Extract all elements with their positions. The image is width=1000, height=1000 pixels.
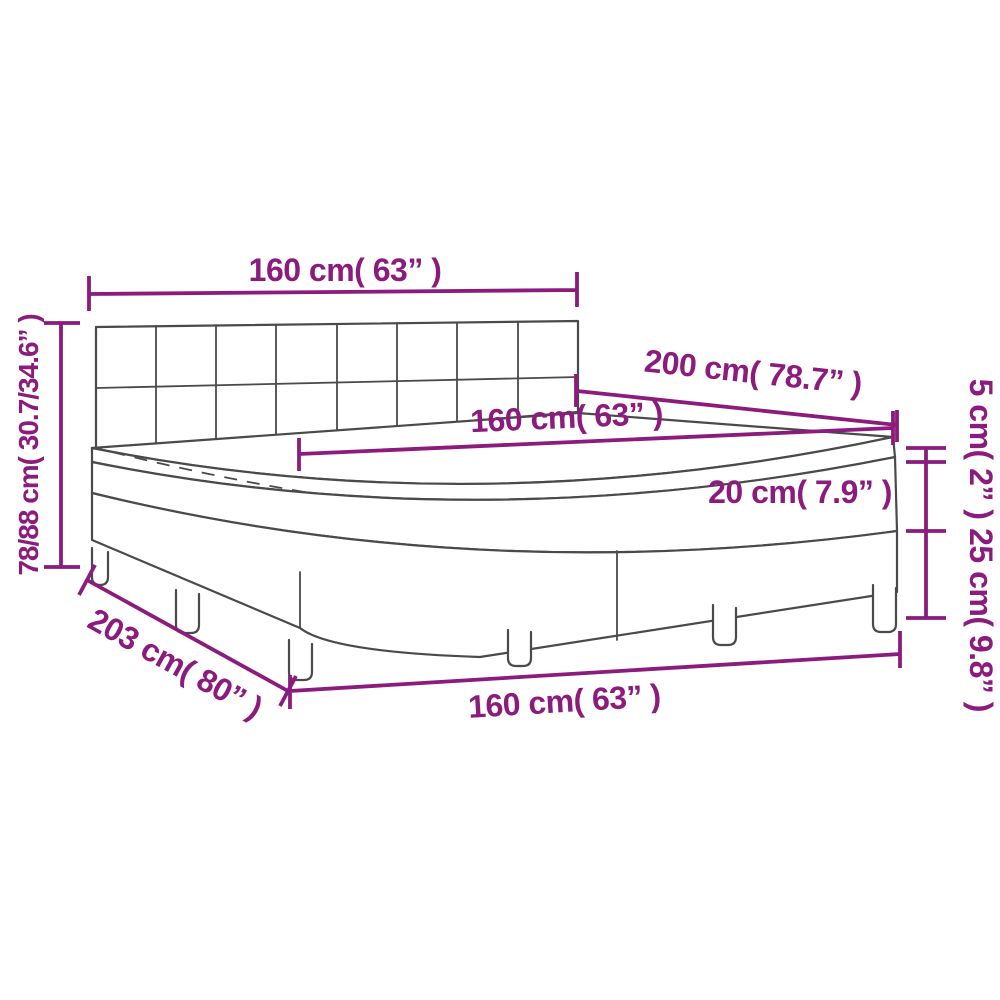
dim-headboard-width: 160 cm( 63” ) xyxy=(89,252,577,311)
bed-leg-5 xyxy=(713,605,736,645)
dim-right-heights: 5 cm( 2” ) 25 cm( 9.8” ) xyxy=(906,379,999,712)
dim-base-thickness-label: 25 cm( 9.8” ) xyxy=(963,528,999,712)
dim-topper-thickness-label: 5 cm( 2” ) xyxy=(963,379,999,520)
bed-leg-4 xyxy=(508,630,531,666)
dim-total-height-label: 78/88 cm( 30.7/34.6” ) xyxy=(13,314,44,575)
dim-mattress-thickness-label: 20 cm( 7.9” ) xyxy=(708,474,892,510)
dim-headboard-width-label: 160 cm( 63” ) xyxy=(249,252,442,288)
diagram-canvas: 160 cm( 63” ) 78/88 cm( 30.7/34.6” ) 200… xyxy=(0,0,1000,1000)
dim-bed-length-label: 200 cm( 78.7” ) xyxy=(643,343,864,402)
dim-total-height: 78/88 cm( 30.7/34.6” ) xyxy=(13,314,80,575)
bed-leg-6 xyxy=(873,585,896,632)
dim-base-width-label: 160 cm( 63” ) xyxy=(467,677,662,725)
bed-dimension-diagram: 160 cm( 63” ) 78/88 cm( 30.7/34.6” ) 200… xyxy=(0,0,1000,1000)
bed-leg-3 xyxy=(289,640,312,680)
dim-right-heights-line xyxy=(906,448,946,618)
dim-total-height-line xyxy=(44,323,80,567)
bed-leg-2 xyxy=(176,590,199,633)
